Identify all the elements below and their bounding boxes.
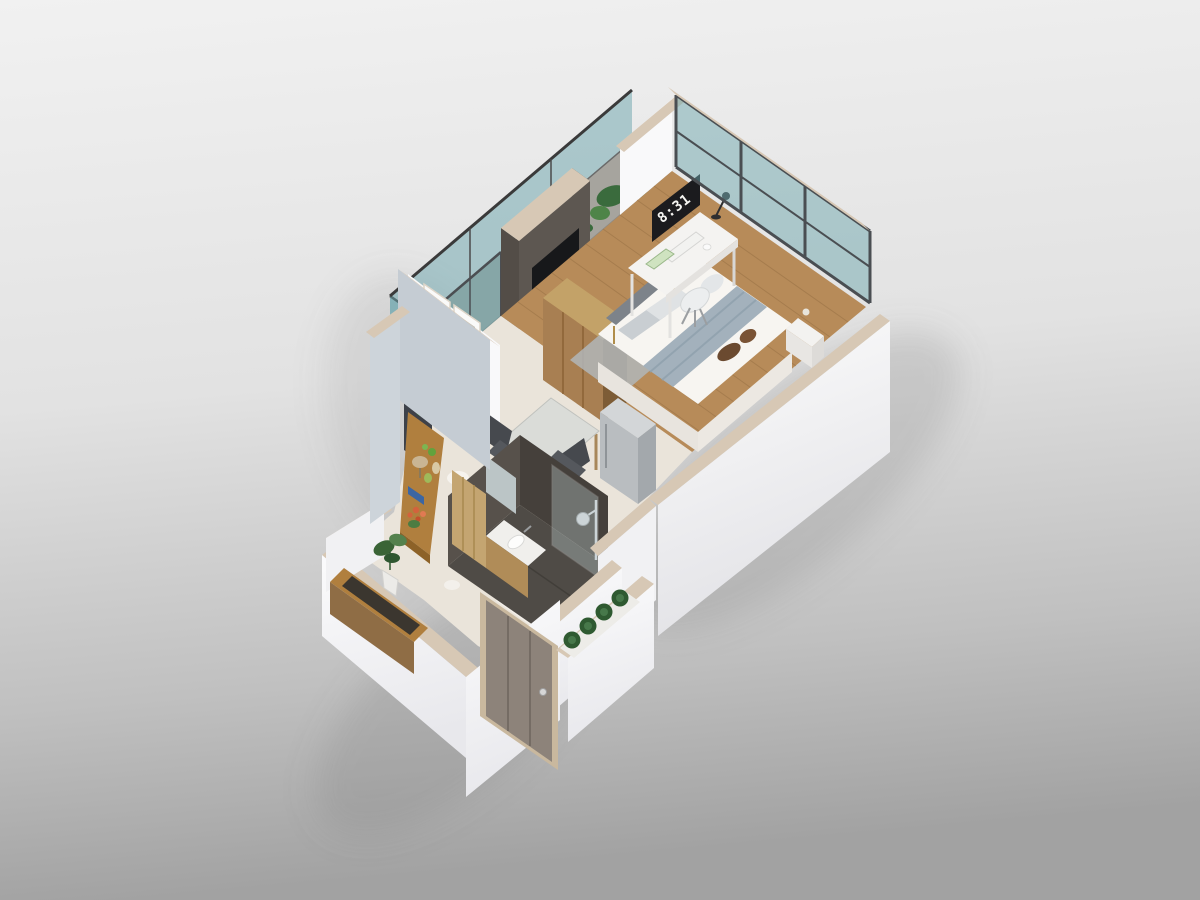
left-outer-wall — [370, 308, 400, 524]
desk-mouse — [703, 244, 711, 250]
isometric-apartment-scene: 8:31 — [0, 0, 1200, 900]
plant-leaf — [384, 553, 400, 563]
fridge-side — [638, 424, 656, 504]
tile-light-glow — [444, 580, 460, 590]
green-bowl — [428, 448, 436, 456]
floor-plan-render: 8:31 — [0, 0, 1200, 900]
table-lamp-shade — [412, 456, 428, 468]
balcony-plant-leaf — [590, 206, 610, 220]
nightstand-lamp — [803, 309, 810, 316]
green-bowl — [422, 444, 428, 450]
vase — [432, 462, 440, 474]
green-fruit — [424, 473, 432, 483]
front-door-handle — [540, 689, 547, 696]
